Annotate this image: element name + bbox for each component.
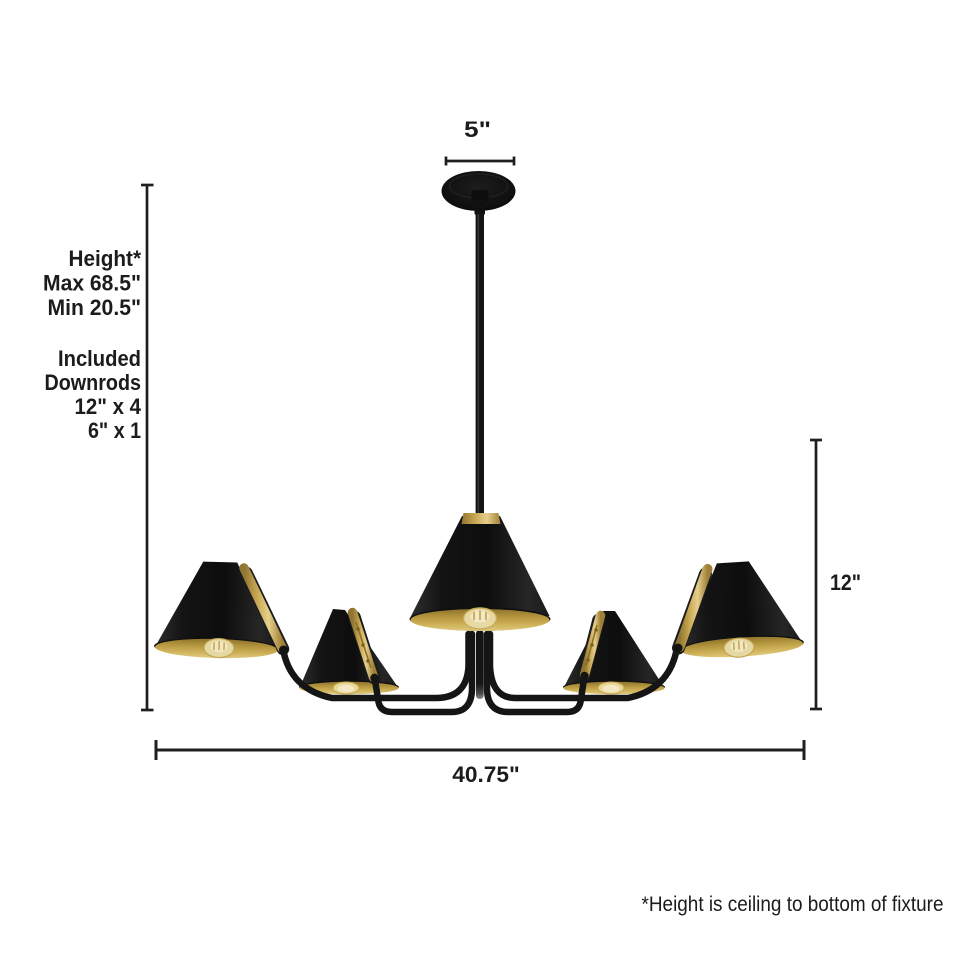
svg-text:5": 5" <box>464 117 491 142</box>
svg-text:40.75": 40.75" <box>452 762 520 787</box>
svg-text:6" x 1: 6" x 1 <box>88 418 141 443</box>
svg-text:12" x 4: 12" x 4 <box>75 394 142 419</box>
svg-text:Downrods: Downrods <box>45 370 142 395</box>
svg-text:Height*: Height* <box>69 246 142 271</box>
svg-text:Min 20.5": Min 20.5" <box>48 295 142 320</box>
svg-text:Max 68.5": Max 68.5" <box>43 271 141 296</box>
svg-text:Included: Included <box>58 346 141 371</box>
svg-text:12": 12" <box>830 570 861 595</box>
svg-text:*Height is ceiling to bottom o: *Height is ceiling to bottom of fixture <box>642 892 944 916</box>
